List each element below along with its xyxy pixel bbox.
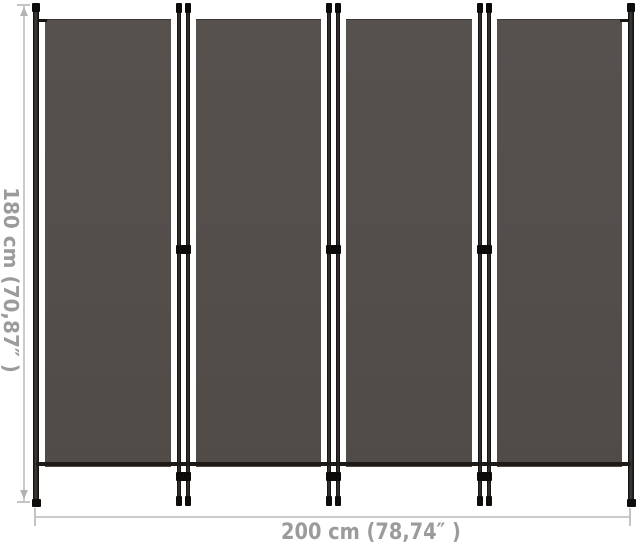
height-dimension-line bbox=[23, 5, 25, 503]
hinge-junction-3 bbox=[478, 2, 491, 506]
hinge-knob bbox=[477, 3, 483, 13]
frame-pole-right bbox=[628, 6, 634, 505]
junction-pole bbox=[177, 6, 181, 505]
fabric-hem bbox=[36, 462, 631, 466]
junction-pole bbox=[487, 6, 491, 505]
hinge-knob bbox=[486, 3, 492, 13]
room-divider bbox=[33, 2, 634, 506]
hinge-knob bbox=[185, 3, 191, 13]
pole-foot bbox=[176, 496, 182, 506]
hinge-bottom bbox=[477, 472, 492, 481]
fabric-panel-2 bbox=[196, 19, 322, 467]
junction-pole bbox=[186, 6, 190, 505]
pole-foot bbox=[335, 496, 341, 506]
pole-foot bbox=[477, 496, 483, 506]
arrow-up-icon bbox=[20, 7, 28, 16]
pole-cap bbox=[32, 3, 40, 12]
width-dimension-label: 200 cm (78,74″ ) bbox=[281, 520, 461, 545]
junction-pole bbox=[327, 6, 331, 505]
height-dimension-cap-bottom bbox=[17, 501, 30, 503]
frame-pole-left bbox=[33, 6, 39, 505]
hinge-middle bbox=[176, 245, 191, 254]
fabric-panel-1 bbox=[45, 19, 171, 467]
pole-foot bbox=[185, 496, 191, 506]
pole-cap bbox=[627, 3, 635, 12]
hinge-middle bbox=[326, 245, 341, 254]
product-diagram: 180 cm (70,87″ ) 200 cm (78,74″ ) bbox=[0, 0, 640, 546]
hinge-junction-2 bbox=[327, 2, 340, 506]
hinge-knob bbox=[335, 3, 341, 13]
width-dimension-cap-left bbox=[34, 508, 36, 526]
fabric-bracket bbox=[38, 19, 47, 22]
width-dimension-cap-right bbox=[629, 508, 631, 526]
hinge-junction-1 bbox=[177, 2, 190, 506]
pole-foot bbox=[486, 496, 492, 506]
pole-foot bbox=[627, 499, 636, 507]
fabric-panel-3 bbox=[346, 19, 472, 467]
junction-pole bbox=[478, 6, 482, 505]
fabric-bracket bbox=[620, 19, 629, 22]
width-dimension-line bbox=[35, 516, 631, 518]
hinge-bottom bbox=[326, 472, 341, 481]
hinge-bottom bbox=[176, 472, 191, 481]
pole-foot bbox=[326, 496, 332, 506]
hinge-knob bbox=[326, 3, 332, 13]
pole-foot bbox=[32, 499, 41, 507]
arrow-down-icon bbox=[20, 490, 28, 499]
hinge-middle bbox=[477, 245, 492, 254]
height-dimension-cap-top bbox=[17, 4, 30, 6]
hinge-knob bbox=[176, 3, 182, 13]
junction-pole bbox=[336, 6, 340, 505]
fabric-panel-4 bbox=[497, 19, 623, 467]
